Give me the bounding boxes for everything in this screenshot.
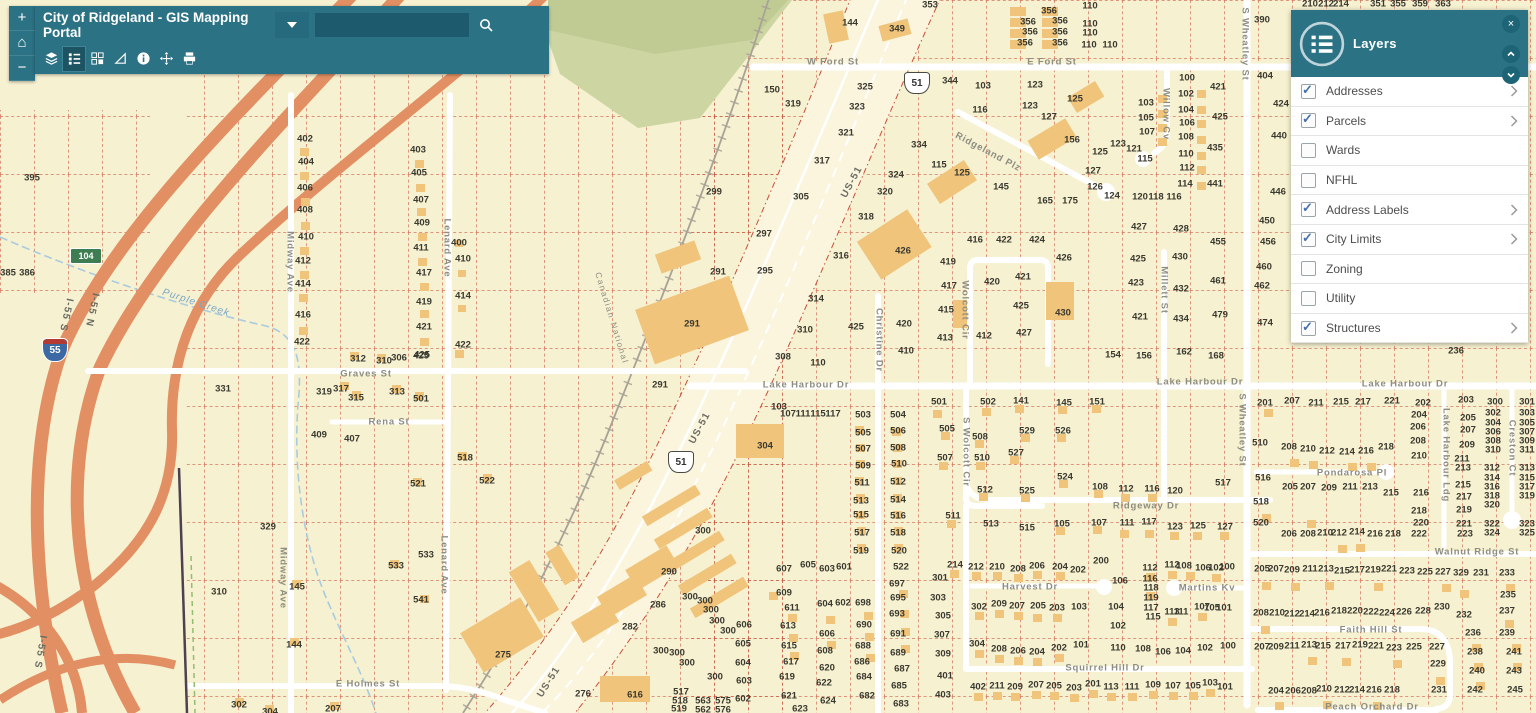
layer-row-city-limits[interactable]: City Limits	[1291, 225, 1528, 255]
layer-row-utility[interactable]: Utility	[1291, 284, 1528, 314]
layer-row-address-labels[interactable]: Address Labels	[1291, 195, 1528, 225]
layers-list-icon	[1299, 21, 1345, 67]
zoom-controls: + ⌂ −	[9, 6, 35, 81]
layer-checkbox[interactable]	[1301, 143, 1316, 158]
search-button[interactable]	[469, 12, 503, 38]
search-icon	[478, 17, 494, 33]
layer-label: Zoning	[1326, 262, 1528, 276]
layer-checkbox[interactable]	[1301, 232, 1316, 247]
layer-label: Structures	[1326, 321, 1510, 335]
layers-panel-header: Layers ×	[1291, 10, 1528, 77]
basemap-tool-button[interactable]	[86, 47, 108, 71]
layers-list: AddressesParcelsWardsNFHLAddress LabelsC…	[1291, 77, 1528, 343]
chevron-right-icon[interactable]	[1510, 204, 1518, 216]
chevron-right-icon[interactable]	[1510, 85, 1518, 97]
layer-row-structures[interactable]: Structures	[1291, 314, 1528, 344]
layer-checkbox[interactable]	[1301, 113, 1316, 128]
layer-checkbox[interactable]	[1301, 321, 1316, 336]
chevron-down-icon	[287, 22, 297, 28]
layer-row-nfhl[interactable]: NFHL	[1291, 166, 1528, 196]
basemap-grid-icon	[90, 51, 105, 66]
chevron-right-icon[interactable]	[1510, 115, 1518, 127]
scroll-down-icon[interactable]	[1502, 66, 1520, 84]
layers-icon	[44, 51, 59, 66]
layer-checkbox[interactable]	[1301, 291, 1316, 306]
measure-tool-button[interactable]	[109, 47, 131, 71]
layer-checkbox[interactable]	[1301, 173, 1316, 188]
layer-label: Utility	[1326, 291, 1528, 305]
search-input[interactable]	[315, 13, 469, 37]
layer-row-addresses[interactable]: Addresses	[1291, 77, 1528, 107]
page-title: City of Ridgeland - GIS Mapping Portal	[35, 10, 273, 40]
app-header: City of Ridgeland - GIS Mapping Portal	[35, 6, 549, 74]
home-button[interactable]: ⌂	[9, 31, 35, 56]
layers-panel: Layers × AddressesParcelsWardsNFHLAddres…	[1291, 10, 1528, 343]
layer-row-zoning[interactable]: Zoning	[1291, 255, 1528, 285]
info-icon	[136, 51, 151, 66]
layers-panel-title: Layers	[1353, 36, 1397, 51]
info-tool-button[interactable]	[132, 47, 154, 71]
layer-row-parcels[interactable]: Parcels	[1291, 107, 1528, 137]
close-icon[interactable]: ×	[1502, 15, 1520, 33]
layer-label: Parcels	[1326, 114, 1510, 128]
zoom-in-button[interactable]: +	[9, 6, 35, 31]
gis-map-viewport[interactable]: 3953853863314024044064084104124144164224…	[0, 0, 1536, 713]
zoom-out-button[interactable]: −	[9, 56, 35, 81]
chevron-right-icon[interactable]	[1510, 233, 1518, 245]
layer-label: Address Labels	[1326, 203, 1510, 217]
layer-checkbox[interactable]	[1301, 261, 1316, 276]
scroll-up-icon[interactable]	[1502, 45, 1520, 63]
layer-label: City Limits	[1326, 232, 1510, 246]
layer-checkbox[interactable]	[1301, 202, 1316, 217]
pan-arrows-icon	[159, 51, 174, 66]
chevron-right-icon[interactable]	[1510, 322, 1518, 334]
print-tool-button[interactable]	[178, 47, 200, 71]
legend-tool-button[interactable]	[63, 47, 85, 71]
layer-label: NFHL	[1326, 173, 1528, 187]
layer-label: Wards	[1326, 143, 1528, 157]
layers-tool-button[interactable]	[40, 47, 62, 71]
layer-checkbox[interactable]	[1301, 84, 1316, 99]
layer-row-wards[interactable]: Wards	[1291, 136, 1528, 166]
legend-list-icon	[67, 51, 82, 66]
map-toolbar	[35, 44, 549, 73]
measure-triangle-icon	[113, 51, 128, 66]
print-icon	[182, 51, 197, 66]
search-source-dropdown[interactable]	[275, 12, 309, 38]
layer-label: Addresses	[1326, 84, 1510, 98]
pan-tool-button[interactable]	[155, 47, 177, 71]
